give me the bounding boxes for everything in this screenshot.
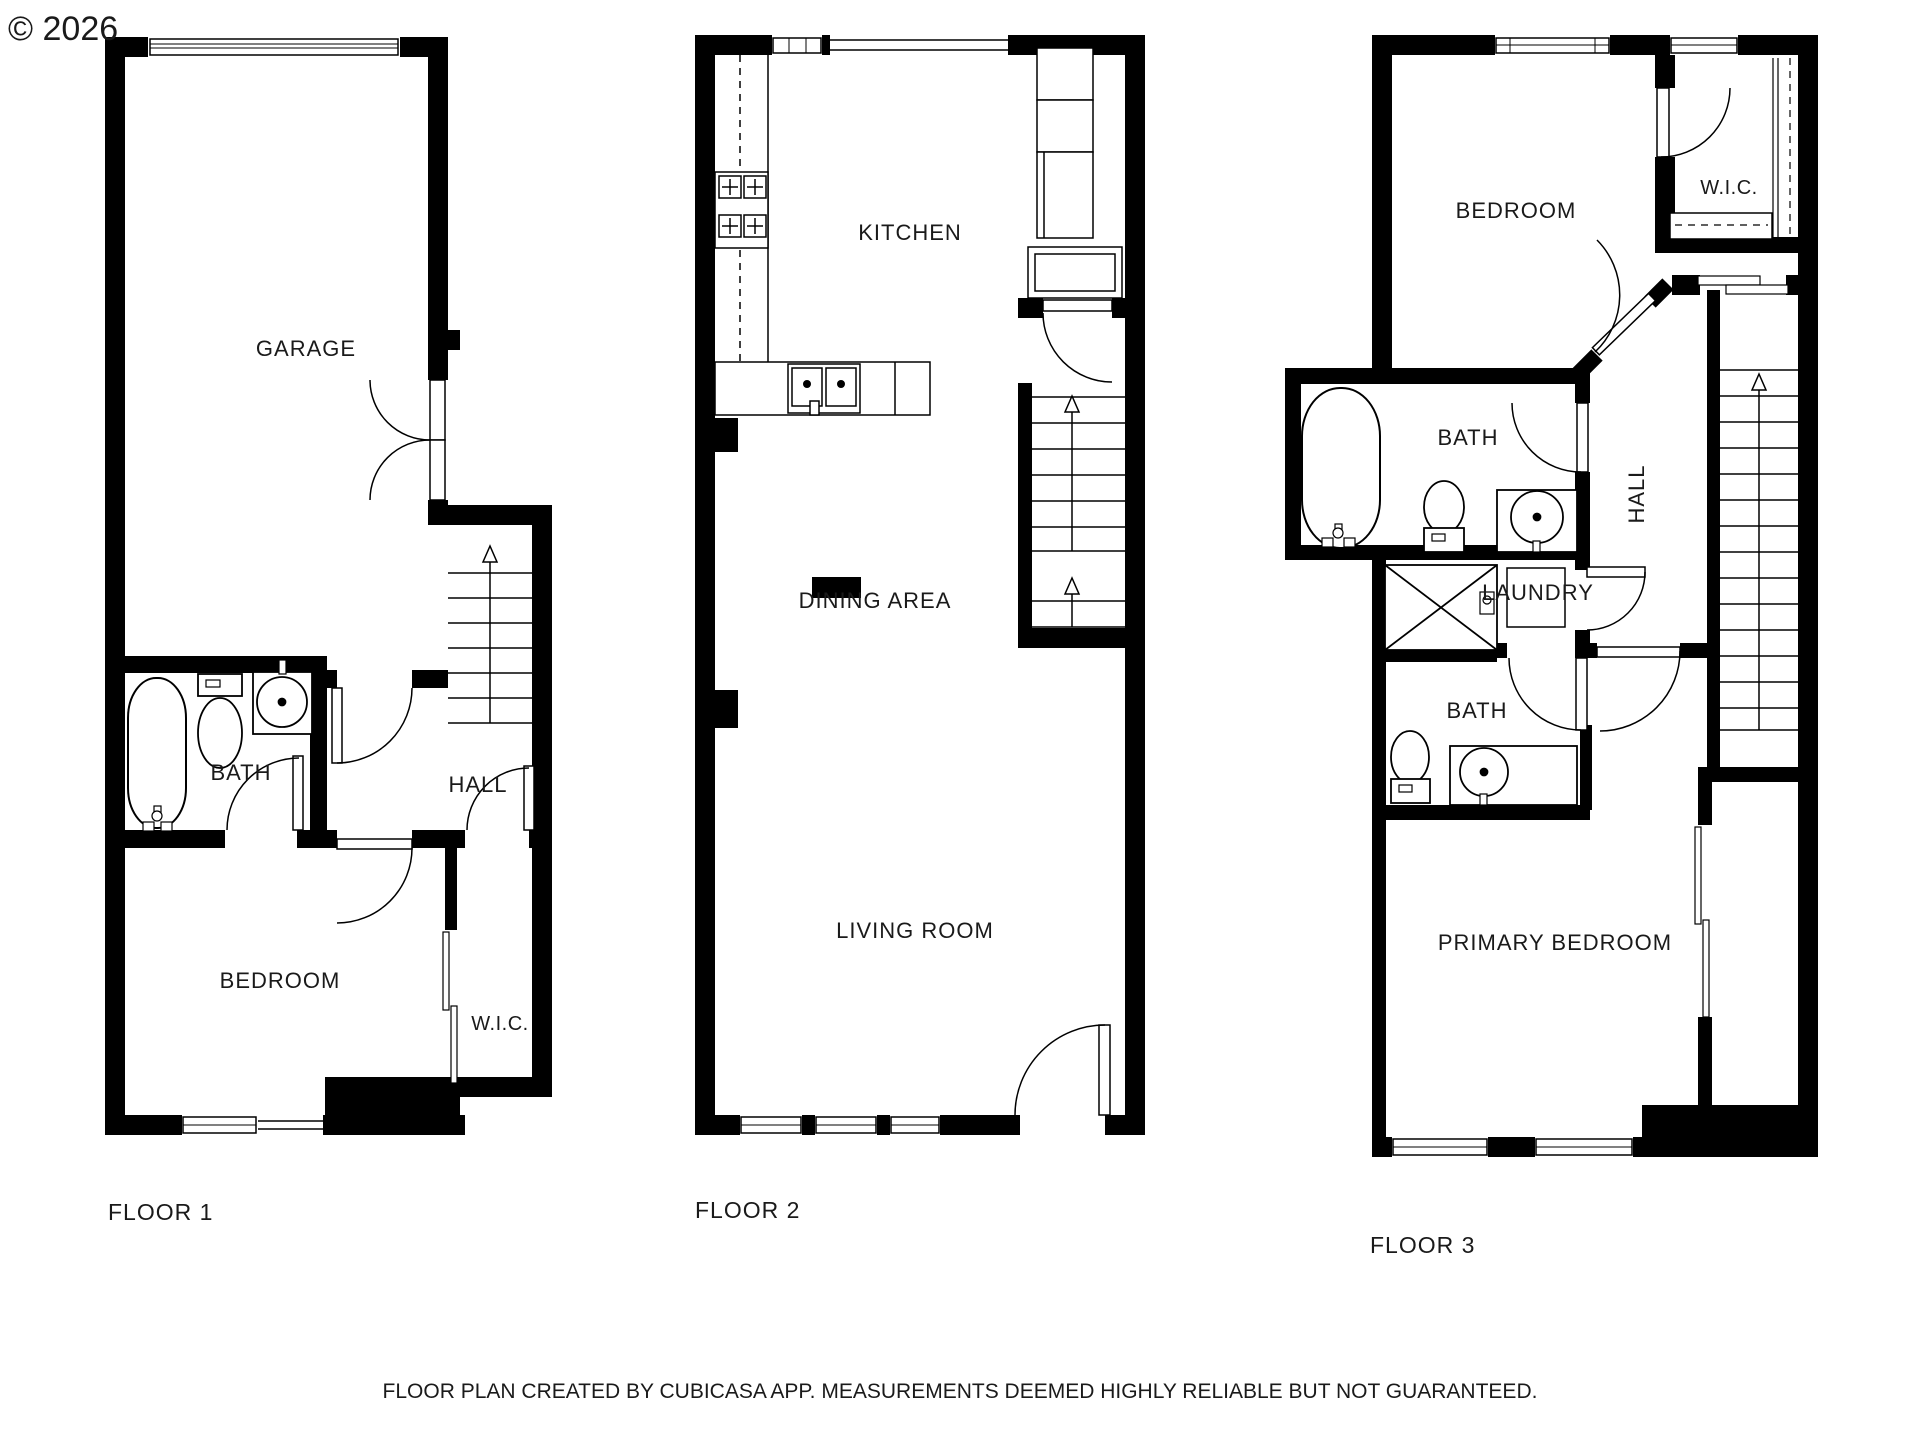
living-room-door <box>1015 1025 1110 1135</box>
laundry-door <box>1587 567 1645 630</box>
floor-2-label: FLOOR 2 <box>695 1197 800 1223</box>
floor-1-label: FLOOR 1 <box>108 1199 213 1225</box>
room-label-primary-bedroom: PRIMARY BEDROOM <box>1438 930 1672 955</box>
room-label-bath-lower: BATH <box>1446 698 1507 723</box>
bath-upper-door <box>1512 403 1588 472</box>
floor-1-windows <box>182 1115 323 1135</box>
room-label-bath-upper: BATH <box>1437 425 1498 450</box>
entry-door <box>1043 300 1112 382</box>
bathtub-icon <box>128 678 186 831</box>
room-label-bath-f1: BATH <box>210 760 271 785</box>
garage-double-door <box>370 380 445 500</box>
floor-plan-page: GARAGE BATH HALL BEDROOM W.I.C. FLOOR 1 <box>0 0 1920 1440</box>
room-label-kitchen: KITCHEN <box>858 220 962 245</box>
bedroom-door <box>337 839 412 923</box>
floor-3: BEDROOM W.I.C. BATH HALL LAUNDRY BATH PR… <box>1285 35 1818 1258</box>
room-label-garage: GARAGE <box>256 336 356 361</box>
floor-plan-canvas: GARAGE BATH HALL BEDROOM W.I.C. FLOOR 1 <box>0 0 1920 1440</box>
room-label-hall-f3: HALL <box>1624 464 1649 523</box>
copyright-watermark: © 2026 <box>8 10 118 48</box>
floor-2-top-windows <box>772 35 1008 55</box>
room-label-laundry: LAUNDRY <box>1482 580 1594 605</box>
room-label-bedroom-f3: BEDROOM <box>1456 198 1577 223</box>
room-label-hall-f1: HALL <box>448 772 507 797</box>
sink-icon-f3-lower <box>1450 746 1577 805</box>
floor-2-stairs <box>1032 396 1125 627</box>
disclaimer-text: FLOOR PLAN CREATED BY CUBICASA APP. MEAS… <box>383 1380 1538 1403</box>
wic-closet-fittings <box>1670 58 1790 239</box>
bath-lower-door <box>1509 658 1587 730</box>
primary-bedroom-door <box>1597 647 1680 731</box>
wic-sliding-door <box>443 932 457 1083</box>
hall-garage-door <box>332 688 412 763</box>
floor-3-stairs <box>1720 370 1798 730</box>
room-label-dining: DINING AREA <box>799 588 952 613</box>
floor-3-label: FLOOR 3 <box>1370 1232 1475 1258</box>
bathtub-icon-f3 <box>1302 388 1380 548</box>
toilet-icon <box>198 674 242 768</box>
primary-closet-sliding-door <box>1695 827 1709 1017</box>
floor-1: GARAGE BATH HALL BEDROOM W.I.C. FLOOR 1 <box>105 37 552 1225</box>
fridge-and-cabinets <box>1028 48 1122 298</box>
room-label-wic-f1: W.I.C. <box>471 1013 528 1035</box>
wic-door-f3 <box>1657 88 1730 157</box>
room-label-wic-f3: W.I.C. <box>1700 177 1757 199</box>
floor-2-bottom-windows <box>740 1115 940 1135</box>
floor-1-stairs <box>448 546 532 723</box>
room-label-bedroom-f1: BEDROOM <box>220 968 341 993</box>
garage-door-window <box>148 37 400 57</box>
bedroom-diagonal-door <box>1577 240 1668 375</box>
kitchen-island-sink <box>715 362 930 415</box>
toilet-icon-f3-lower <box>1391 731 1430 803</box>
room-label-living: LIVING ROOM <box>836 918 994 943</box>
toilet-icon-f3-upper <box>1424 481 1464 552</box>
stove-icon <box>715 172 768 248</box>
floor-2: KITCHEN DINING AREA LIVING ROOM FLOOR 2 <box>695 35 1145 1223</box>
sink-icon-f3-upper <box>1497 490 1577 552</box>
